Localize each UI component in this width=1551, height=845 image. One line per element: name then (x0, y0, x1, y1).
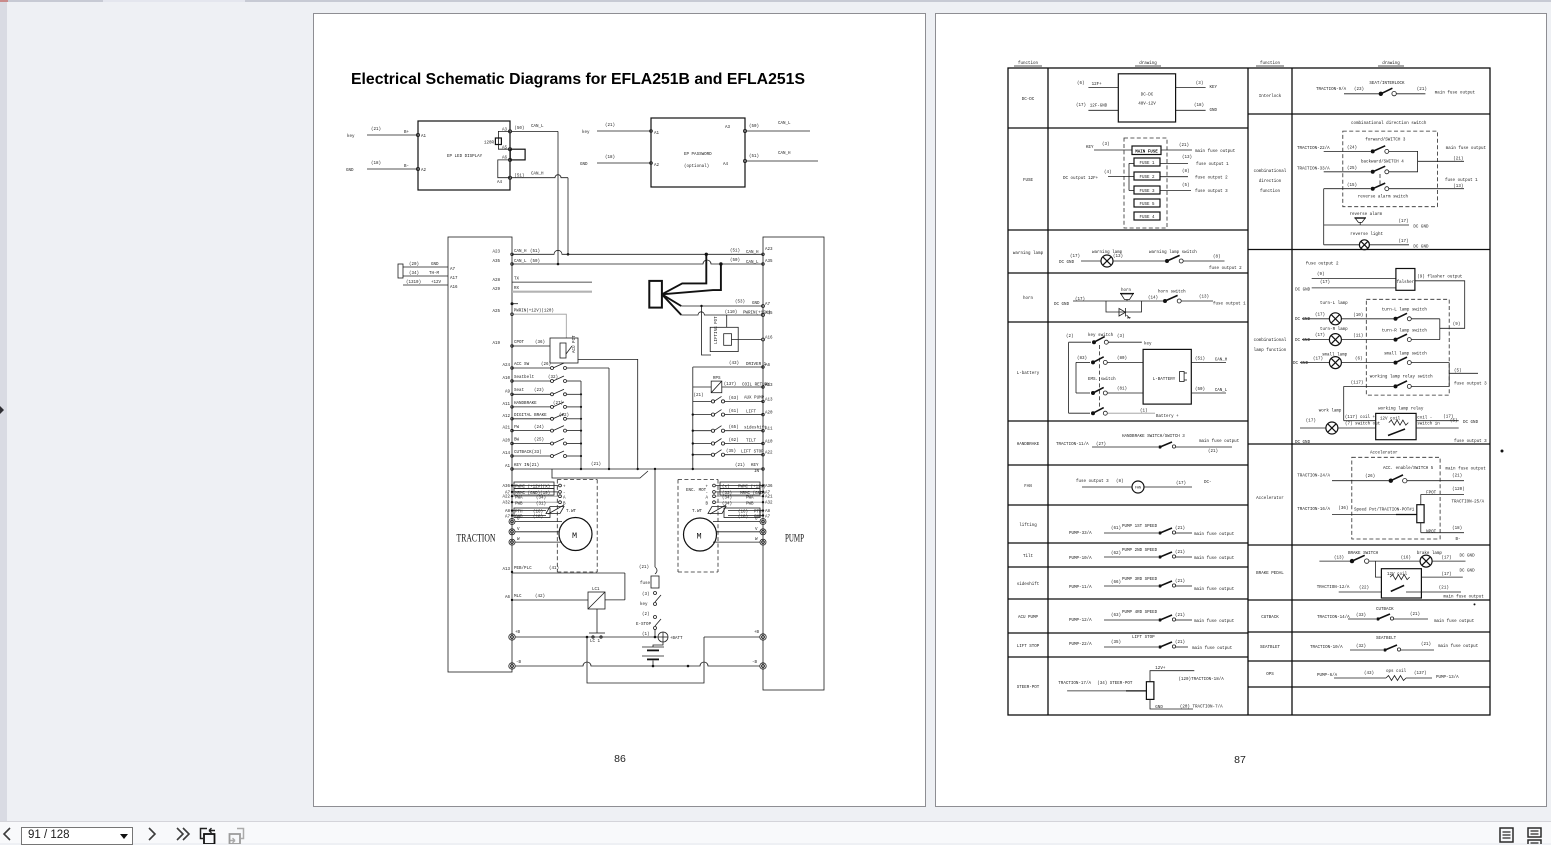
svg-text:(14): (14) (1148, 296, 1158, 301)
svg-text:CAN_L: CAN_L (531, 125, 544, 129)
svg-text:A11: A11 (502, 403, 510, 407)
svg-text:(41): (41) (549, 566, 559, 571)
svg-text:A8: A8 (765, 510, 771, 514)
svg-text:TILT: TILT (746, 440, 757, 444)
svg-text:(51): (51) (749, 154, 759, 159)
svg-text:(16): (16) (738, 509, 748, 514)
svg-text:LIFTING POT: LIFTING POT (715, 316, 719, 344)
svg-text:KEY: KEY (1086, 146, 1094, 150)
svg-text:working lamp relay switch: working lamp relay switch (1370, 374, 1433, 379)
svg-text:A8: A8 (505, 510, 511, 514)
svg-text:ACU PUMP: ACU PUMP (1018, 616, 1039, 620)
svg-text:A24: A24 (502, 364, 510, 368)
svg-text:Seat: Seat (514, 389, 525, 393)
svg-text:PUMP-6/A: PUMP-6/A (1317, 673, 1338, 678)
svg-text:LIFT STOP: LIFT STOP (1132, 636, 1155, 640)
svg-text:(18): (18) (533, 515, 543, 520)
svg-text:CAN_H: CAN_H (531, 173, 544, 177)
svg-text:(17): (17) (1076, 103, 1086, 108)
svg-text:horn: horn (1023, 296, 1034, 301)
svg-text:switch in: switch in (1417, 422, 1440, 427)
svg-text:(26): (26) (1365, 474, 1375, 479)
svg-text:EP LED DISPLAY: EP LED DISPLAY (447, 155, 483, 159)
svg-text:A32: A32 (765, 502, 773, 506)
svg-text:+B: +B (515, 631, 521, 635)
svg-text:A12: A12 (502, 415, 510, 419)
svg-text:A1: A1 (654, 132, 660, 136)
svg-text:Interlock: Interlock (1259, 94, 1282, 99)
svg-text:A2: A2 (421, 169, 427, 173)
svg-text:(50): (50) (514, 126, 524, 131)
svg-text:main fuse output: main fuse output (1434, 619, 1475, 624)
svg-text:fuse output 1: fuse output 1 (1196, 162, 1229, 167)
svg-text:warning lamp: warning lamp (1013, 251, 1044, 256)
svg-text:(36): (36) (1338, 506, 1348, 511)
svg-text:(22): (22) (1359, 586, 1369, 591)
svg-text:DC GND: DC GND (1295, 441, 1311, 445)
svg-text:DC-DC: DC-DC (1141, 93, 1154, 97)
svg-text:CAN_L: CAN_L (746, 261, 759, 265)
svg-text:LIFT STOP: LIFT STOP (741, 450, 764, 454)
svg-text:TRACTION-33/A: TRACTION-33/A (1297, 167, 1330, 172)
svg-text:(80): (80) (1117, 356, 1127, 361)
svg-text:(120)TRACTION-18/A: (120)TRACTION-18/A (1179, 677, 1225, 682)
svg-text:PUMP 3RD SPEED: PUMP 3RD SPEED (1122, 578, 1158, 582)
svg-text:SEAT/INTERLOCK: SEAT/INTERLOCK (1369, 81, 1405, 86)
svg-text:KEY: KEY (751, 464, 759, 468)
svg-text:(51): (51) (1195, 357, 1205, 362)
svg-text:W: W (755, 538, 758, 542)
svg-text:DC GND: DC GND (1460, 555, 1476, 559)
svg-text:(9): (9) (1317, 272, 1325, 277)
svg-text:TRACTION-25/A: TRACTION-25/A (1452, 500, 1485, 505)
svg-text:function: function (1018, 61, 1039, 66)
svg-text:(13): (13) (1113, 254, 1123, 259)
svg-text:PWRIN(+12V)(120): PWRIN(+12V)(120) (514, 309, 554, 314)
svg-text:(34): (34) (722, 501, 732, 506)
svg-text:backward/SWITCH 4: backward/SWITCH 4 (1361, 160, 1404, 165)
svg-text:(17): (17) (1070, 254, 1080, 259)
svg-text:SEATBELT: SEATBELT (1376, 637, 1397, 641)
svg-text:PUMP-22/A: PUMP-22/A (1069, 642, 1092, 647)
svg-text:(5): (5) (1450, 419, 1458, 424)
svg-text:A3: A3 (502, 129, 508, 133)
svg-text:(17): (17) (1306, 419, 1316, 424)
svg-text:main fuse output: main fuse output (1194, 587, 1235, 592)
svg-text:(21): (21) (1410, 612, 1420, 617)
svg-text:(17): (17) (1176, 481, 1186, 486)
svg-text:fuse output 3: fuse output 3 (1076, 479, 1109, 484)
svg-text:DC-DC: DC-DC (1022, 98, 1035, 102)
svg-text:falsher: falsher (1397, 280, 1415, 285)
svg-text:main fuse output: main fuse output (1199, 439, 1240, 444)
svg-text:turn-R lamp switch: turn-R lamp switch (1382, 329, 1428, 334)
svg-text:(32): (32) (1356, 644, 1366, 649)
svg-text:ACU POT: ACU POT (573, 335, 577, 353)
svg-text:A35: A35 (765, 260, 773, 264)
svg-text:CAN_L: CAN_L (778, 122, 791, 126)
svg-text:FUSE 1: FUSE 1 (1139, 162, 1155, 166)
svg-text:(8): (8) (1116, 479, 1124, 484)
svg-text:(53): (53) (735, 300, 745, 305)
svg-text:fuse: fuse (640, 581, 651, 586)
svg-text:T.WT: T.WT (566, 510, 577, 514)
svg-text:(2): (2) (642, 612, 650, 617)
svg-text:(20): (20) (409, 262, 419, 267)
svg-text:(34): (34) (536, 495, 546, 500)
svg-text:(21): (21) (735, 463, 745, 468)
svg-text:A25: A25 (492, 310, 500, 314)
svg-text:+BATT: +BATT (670, 637, 683, 641)
svg-text:(17): (17) (1315, 333, 1325, 338)
svg-text:A17: A17 (450, 277, 458, 281)
svg-text:(6): (6) (1355, 357, 1363, 362)
svg-text:horn: horn (1121, 288, 1132, 293)
svg-text:LIFT STOP: LIFT STOP (1017, 645, 1040, 649)
svg-text:B-: B- (404, 165, 409, 169)
svg-text:A22: A22 (765, 452, 773, 456)
svg-text:A6: A6 (765, 364, 771, 368)
svg-text:(21): (21) (1175, 613, 1185, 618)
svg-text:(7) switch out: (7) switch out (1345, 422, 1381, 427)
svg-text:(63): (63) (729, 396, 739, 401)
svg-text:(61): (61) (729, 409, 739, 414)
svg-text:fuse output 3: fuse output 3 (1454, 382, 1487, 387)
svg-text:(6): (6) (1077, 81, 1085, 86)
svg-text:PWB: PWB (515, 502, 523, 506)
svg-text:DC GND: DC GND (1413, 246, 1429, 250)
svg-text:A20: A20 (502, 440, 510, 444)
svg-text:fuse output 1: fuse output 1 (1445, 178, 1478, 183)
svg-text:(21): (21) (371, 127, 381, 132)
svg-text:GND: GND (752, 302, 760, 306)
svg-text:(110): (110) (725, 310, 738, 315)
svg-text:(21): (21) (1452, 474, 1462, 479)
svg-text:(22): (22) (559, 413, 569, 418)
svg-text:A32: A32 (502, 502, 510, 506)
svg-text:(17): (17) (1442, 572, 1452, 577)
svg-text:DC GND: DC GND (1460, 570, 1476, 574)
svg-text:CAN_H: CAN_H (514, 250, 527, 254)
svg-text:GND: GND (580, 163, 588, 167)
svg-text:GND: GND (431, 263, 439, 267)
svg-text:combinational direction switch: combinational direction switch (1351, 121, 1427, 126)
svg-text:AUX PUMP: AUX PUMP (744, 397, 765, 401)
svg-text:CAN_H: CAN_H (1215, 358, 1228, 362)
svg-text:A20: A20 (765, 412, 773, 416)
svg-text:(35): (35) (726, 449, 736, 454)
svg-text:(137): (137) (1414, 671, 1427, 676)
svg-text:EMS. switch: EMS. switch (1088, 377, 1116, 382)
svg-text:CAN_L: CAN_L (1215, 389, 1228, 393)
svg-text:(17): (17) (1313, 357, 1323, 362)
svg-text:main fuse output: main fuse output (1194, 532, 1235, 537)
svg-text:warning lamp switch: warning lamp switch (1149, 250, 1197, 255)
svg-text:V: V (755, 528, 758, 532)
svg-text:OPS: OPS (1266, 673, 1274, 677)
svg-text:direction: direction (1259, 179, 1282, 184)
svg-text:A16: A16 (765, 337, 773, 341)
svg-text:TRACTION-16/A: TRACTION-16/A (1297, 507, 1330, 512)
svg-text:MLC: MLC (514, 595, 522, 599)
svg-text:(17): (17) (1315, 313, 1325, 318)
svg-text:lifting: lifting (1019, 523, 1037, 528)
svg-text:(21): (21) (639, 565, 649, 570)
svg-text:A: A (563, 496, 566, 500)
svg-text:(51): (51) (530, 249, 540, 254)
svg-text:(117) coil +: (117) coil + (1345, 415, 1376, 420)
svg-text:STEER-POT: STEER-POT (1017, 686, 1040, 690)
svg-text:(62): (62) (1111, 551, 1121, 556)
svg-text:PUMP 1ST SPEED: PUMP 1ST SPEED (1122, 525, 1158, 529)
svg-text:key: key (582, 130, 590, 135)
svg-text:A6: A6 (505, 596, 511, 600)
svg-text:A10: A10 (765, 441, 773, 445)
svg-text:A23: A23 (492, 251, 500, 255)
svg-text:(18): (18) (371, 161, 381, 166)
svg-text:IN: IN (754, 470, 760, 474)
svg-text:Electrical Schematic Diagrams: Electrical Schematic Diagrams for EFLA25… (351, 71, 805, 88)
svg-text:horn switch: horn switch (1158, 290, 1186, 295)
svg-text:CAN_H: CAN_H (778, 152, 791, 156)
svg-text:(3): (3) (1196, 81, 1204, 86)
svg-text:DC-: DC- (1204, 481, 1212, 485)
svg-text:(61): (61) (1111, 526, 1121, 531)
svg-text:(21): (21) (1175, 526, 1185, 531)
svg-text:DC GND: DC GND (1054, 303, 1070, 307)
svg-text:A7: A7 (505, 515, 511, 519)
svg-text:HANDBRAKE SWITCH/SWITCH 3: HANDBRAKE SWITCH/SWITCH 3 (1122, 434, 1185, 439)
svg-text:(1): (1) (1140, 409, 1148, 414)
svg-text:(5): (5) (1454, 369, 1462, 374)
svg-text:Accelerator: Accelerator (1370, 450, 1398, 455)
svg-text:BRAKE PEDAL: BRAKE PEDAL (1256, 572, 1284, 576)
svg-text:A29: A29 (492, 288, 500, 292)
svg-text:turn-L lamp switch: turn-L lamp switch (1382, 308, 1428, 313)
svg-text:(43): (43) (1364, 671, 1374, 676)
svg-text:MRMC (GND): MRMC (GND) (740, 491, 765, 496)
svg-text:(17): (17) (1320, 280, 1330, 285)
svg-text:forward/SWITCH 3: forward/SWITCH 3 (1365, 138, 1406, 143)
svg-text:(34) STEER-POT: (34) STEER-POT (1097, 681, 1133, 686)
svg-text:(20) TRACTION-7/A: (20) TRACTION-7/A (1180, 705, 1223, 710)
svg-text:+B: +B (754, 631, 760, 635)
svg-text:(9) flasher output: (9) flasher output (1417, 275, 1463, 280)
svg-text:HANDBRAKE: HANDBRAKE (1017, 443, 1040, 447)
svg-text:A3: A3 (725, 126, 731, 130)
svg-text:TRACTION: TRACTION (457, 531, 496, 545)
svg-text:Tilt: Tilt (1023, 554, 1034, 559)
svg-text:DC GND: DC GND (1059, 261, 1075, 265)
svg-text:A22: A22 (502, 496, 510, 500)
svg-text:(21): (21) (1439, 586, 1449, 591)
svg-text:coil -: coil - (1417, 416, 1432, 421)
svg-text:fuse output 2: fuse output 2 (1195, 176, 1228, 181)
svg-text:FW: FW (514, 426, 520, 430)
svg-text:drawing: drawing (1139, 61, 1157, 66)
svg-text:(65): (65) (729, 425, 739, 430)
svg-text:M: M (572, 531, 577, 541)
svg-text:key: key (1144, 342, 1152, 347)
svg-text:(8): (8) (1182, 169, 1190, 174)
svg-text:87: 87 (1234, 754, 1246, 766)
svg-text:(1310): (1310) (406, 280, 421, 285)
svg-text:L-BATTERY: L-BATTERY (1153, 378, 1176, 382)
svg-text:(18): (18) (738, 515, 748, 520)
svg-text:ACC. enable/SWITCH 5: ACC. enable/SWITCH 5 (1383, 466, 1434, 471)
svg-text:PWB: PWB (746, 502, 754, 506)
svg-text:(3): (3) (642, 592, 650, 597)
svg-text:PUMP 4RD SPEED: PUMP 4RD SPEED (1122, 611, 1158, 615)
svg-text:(23): (23) (1354, 87, 1364, 92)
svg-text:B: B (563, 502, 566, 506)
svg-text:(18): (18) (1194, 103, 1204, 108)
svg-text:(43): (43) (729, 361, 739, 366)
svg-text:W: W (517, 538, 520, 542)
svg-text:A21: A21 (502, 427, 510, 431)
svg-text:work lamp: work lamp (1319, 409, 1342, 414)
svg-text:(13): (13) (1199, 295, 1209, 300)
svg-text:T.WT: T.WT (692, 510, 703, 514)
svg-text:main fuse output: main fuse output (1438, 644, 1479, 649)
svg-text:(11): (11) (1353, 334, 1363, 339)
svg-text:DC output 12F+: DC output 12F+ (1063, 177, 1099, 181)
svg-text:+12V: +12V (431, 281, 442, 285)
svg-text:(50): (50) (530, 259, 540, 264)
svg-text:(3): (3) (1117, 334, 1125, 339)
svg-text:main fuse output: main fuse output (1192, 646, 1233, 651)
svg-text:A9: A9 (505, 390, 511, 394)
svg-text:TRACTION-12/A: TRACTION-12/A (1317, 585, 1350, 590)
svg-text:(36): (36) (535, 340, 545, 345)
svg-text:(17): (17) (1442, 556, 1452, 561)
svg-text:A1: A1 (505, 465, 511, 469)
svg-text:(50): (50) (1195, 387, 1205, 392)
svg-text:KEY: KEY (1210, 86, 1218, 90)
svg-text:(24): (24) (1347, 146, 1357, 151)
svg-text:FUSE: FUSE (1023, 179, 1034, 183)
svg-text:86: 86 (614, 753, 626, 765)
svg-text:A13: A13 (502, 568, 510, 572)
svg-text:(8): (8) (1213, 255, 1221, 260)
svg-text:(24): (24) (534, 425, 544, 430)
svg-text:DC GND: DC GND (1413, 226, 1429, 230)
svg-text:fuse output 3: fuse output 3 (1454, 439, 1487, 444)
svg-text:(21): (21) (605, 123, 615, 128)
svg-text:A28: A28 (492, 279, 500, 283)
svg-text:main fuse output: main fuse output (1444, 594, 1485, 599)
svg-text:EP PASSWORD: EP PASSWORD (684, 153, 712, 157)
svg-text:BW: BW (514, 439, 520, 443)
svg-text:turn-L lamp: turn-L lamp (1320, 301, 1348, 306)
svg-text:PUMP-11/A: PUMP-11/A (1069, 585, 1092, 590)
svg-text:TRACTION-11/A: TRACTION-11/A (1056, 442, 1089, 447)
svg-text:Speed Pot/TRACTION-POT#1: Speed Pot/TRACTION-POT#1 (1354, 508, 1415, 513)
svg-text:(2): (2) (1066, 334, 1074, 339)
svg-text:48V-12V: 48V-12V (1138, 102, 1156, 106)
svg-text:(16): (16) (1401, 556, 1411, 561)
svg-text:RPS: RPS (713, 377, 721, 381)
svg-text:drawing: drawing (1382, 61, 1400, 66)
svg-text:(51): (51) (514, 174, 524, 179)
svg-text:(42): (42) (535, 594, 545, 599)
svg-text:(17): (17) (1399, 239, 1409, 244)
svg-text:main fuse output: main fuse output (1446, 467, 1487, 472)
svg-text:+: + (563, 486, 566, 490)
svg-text:FUSE 3: FUSE 3 (1139, 190, 1155, 194)
svg-text:turn-R lamp: turn-R lamp (1320, 327, 1348, 332)
svg-text:(10): (10) (1353, 313, 1363, 318)
svg-text:PUMP-13/A: PUMP-13/A (1436, 675, 1459, 680)
svg-text:(16): (16) (533, 509, 543, 514)
svg-text:(21): (21) (1175, 579, 1185, 584)
svg-text:A: A (705, 496, 708, 500)
svg-text:B: B (705, 502, 708, 506)
svg-text:(21): (21) (1208, 449, 1218, 454)
svg-text:combinational: combinational (1254, 338, 1287, 343)
svg-text:fuse output 2: fuse output 2 (1209, 266, 1242, 271)
svg-text:FUSE 4: FUSE 4 (1139, 216, 1155, 220)
svg-text:A2: A2 (654, 164, 660, 168)
svg-text:(21): (21) (591, 462, 601, 467)
svg-text:(25): (25) (1347, 166, 1357, 171)
svg-text:main fuse output: main fuse output (1435, 90, 1476, 95)
svg-text:A13: A13 (765, 398, 773, 402)
svg-text:(26): (26) (541, 362, 551, 367)
svg-text:CUTBACK(33): CUTBACK(33) (514, 450, 542, 455)
svg-text:(27): (27) (1096, 442, 1106, 447)
svg-text:CPOT: CPOT (514, 341, 525, 345)
svg-text:ENC. MOT: ENC. MOT (686, 489, 707, 493)
svg-text:B+: B+ (404, 131, 410, 135)
svg-text:TRACTION-24/A: TRACTION-24/A (1297, 474, 1330, 479)
svg-text:V: V (517, 528, 520, 532)
svg-text:(50): (50) (749, 124, 759, 129)
svg-text:A4: A4 (723, 163, 729, 167)
svg-text:(21): (21) (1453, 156, 1463, 161)
svg-text:-B: -B (516, 661, 522, 665)
svg-text:TRACTION-22/A: TRACTION-22/A (1297, 146, 1330, 151)
svg-text:fuse output 3: fuse output 3 (1195, 189, 1228, 194)
svg-text:brake lamp: brake lamp (1417, 551, 1443, 556)
svg-text:HANDBRAKE: HANDBRAKE (514, 402, 537, 406)
svg-text:KEY IN(21): KEY IN(21) (514, 463, 539, 468)
svg-text:FAN: FAN (1024, 485, 1032, 489)
svg-text:fuse output 1: fuse output 1 (1213, 302, 1246, 307)
svg-text:(3): (3) (1102, 142, 1110, 147)
svg-text:(25): (25) (534, 438, 544, 443)
svg-text:DIGITAL BRAKE: DIGITAL BRAKE (514, 414, 547, 418)
svg-text:(35): (35) (1111, 640, 1121, 645)
svg-text:TH-M: TH-M (429, 272, 440, 276)
svg-text:CAN_H: CAN_H (746, 251, 759, 255)
svg-text:(66): (66) (1111, 580, 1121, 585)
svg-text:FAN: FAN (1135, 487, 1141, 491)
svg-text:PWA: PWA (515, 496, 523, 500)
svg-text:E-STOP: E-STOP (636, 623, 652, 627)
svg-text:Seatbelt: Seatbelt (514, 375, 535, 380)
svg-text:RX: RX (514, 287, 520, 291)
svg-text:(33): (33) (1356, 613, 1366, 618)
svg-text:LIFT: LIFT (746, 411, 757, 415)
svg-text:(81): (81) (1117, 387, 1127, 392)
svg-text:(33): (33) (722, 491, 732, 496)
svg-text:PEB/PLC: PEB/PLC (514, 566, 532, 571)
svg-text:MAIN FUSE: MAIN FUSE (1135, 151, 1158, 155)
svg-text:-: - (563, 492, 566, 496)
svg-text:function: function (1260, 189, 1281, 194)
svg-text:DC GND: DC GND (1295, 288, 1311, 292)
